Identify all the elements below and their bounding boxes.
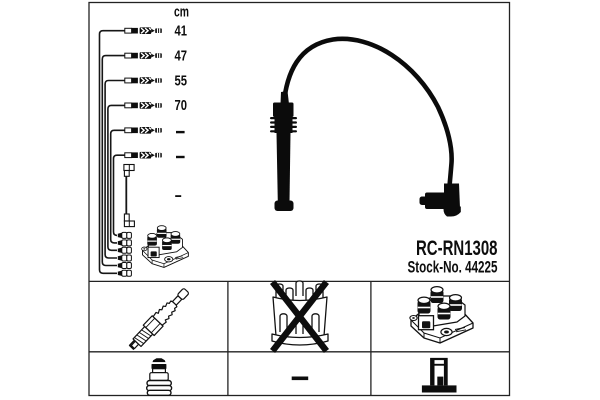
svg-text:Stock-No. 44225: Stock-No. 44225 [408, 258, 498, 277]
svg-text:47: 47 [175, 47, 188, 64]
svg-text:41: 41 [175, 23, 188, 40]
svg-text:55: 55 [175, 72, 188, 89]
svg-text:RC-RN1308: RC-RN1308 [416, 237, 498, 260]
svg-text:70: 70 [175, 97, 188, 114]
svg-text:cm: cm [174, 5, 189, 21]
